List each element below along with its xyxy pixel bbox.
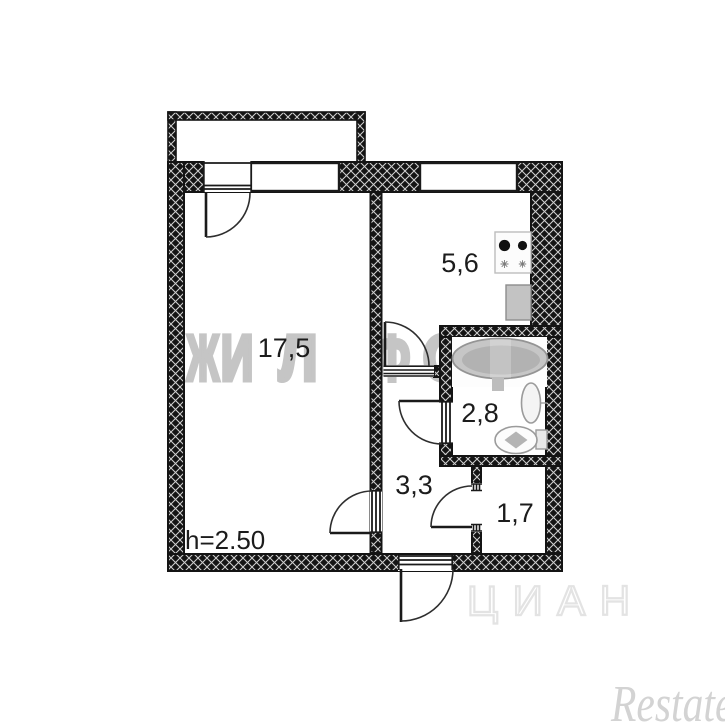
svg-text:Ж: Ж [186, 322, 219, 394]
svg-text:1,7: 1,7 [496, 498, 534, 528]
svg-text:17,5: 17,5 [258, 333, 311, 363]
svg-text:3,3: 3,3 [395, 470, 433, 500]
svg-text:h=2.50: h=2.50 [185, 525, 265, 555]
svg-text:2,8: 2,8 [461, 398, 499, 428]
svg-text:5,6: 5,6 [441, 248, 479, 278]
svg-text:ЦИАН: ЦИАН [467, 577, 645, 624]
svg-text:И: И [221, 322, 253, 394]
svg-text:Restate: Restate [610, 676, 725, 725]
